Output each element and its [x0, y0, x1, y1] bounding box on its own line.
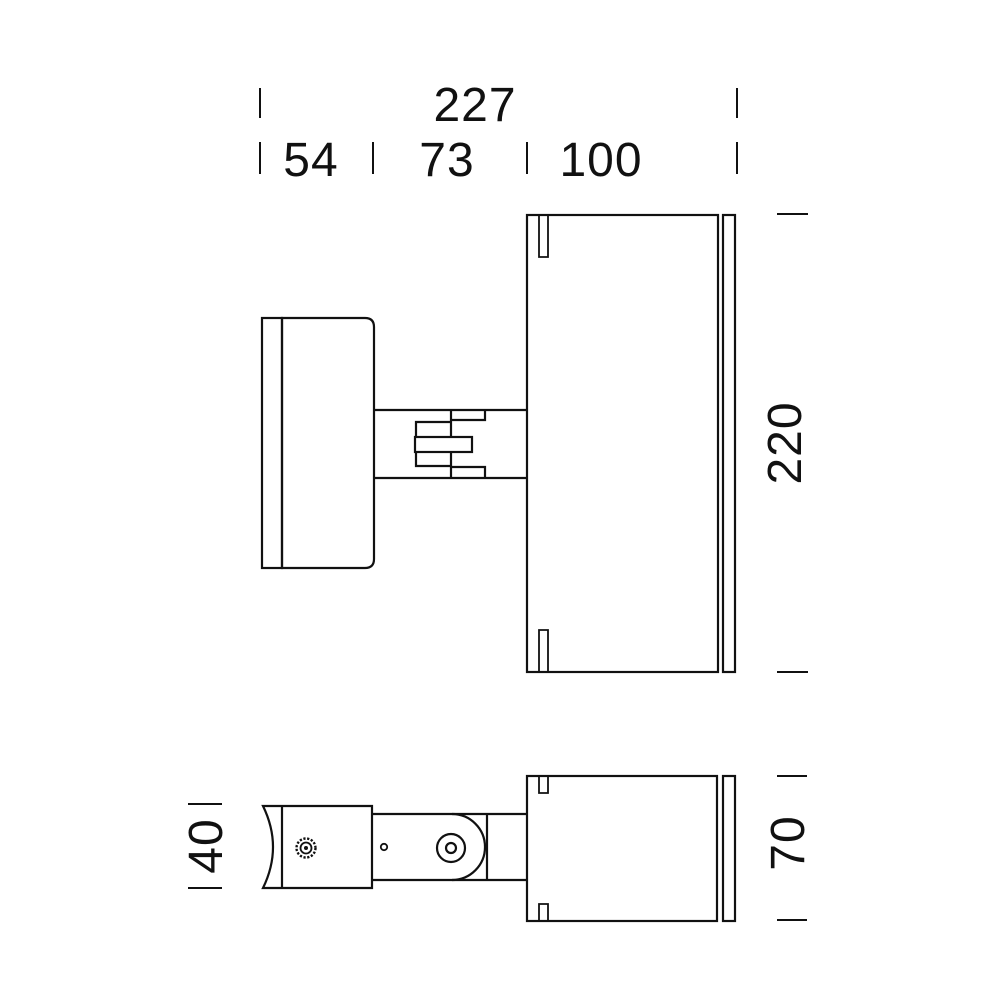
head-slot-bottom	[539, 630, 548, 672]
arm-pin	[381, 844, 387, 850]
hinge-pivot-inner	[446, 843, 456, 853]
head-front-ring	[723, 776, 735, 921]
wall-bracket-side	[262, 318, 374, 568]
drawing-canvas: 227 54 73 100	[0, 0, 1000, 1000]
dim-label-head-depth: 70	[762, 815, 815, 870]
wall-clamp-bottom	[263, 806, 372, 888]
head-bottom	[527, 776, 735, 921]
head-body	[527, 776, 717, 921]
bracket-backplate	[262, 318, 282, 568]
arm-side	[374, 410, 527, 478]
technical-drawing: 227 54 73 100	[0, 0, 1000, 1000]
dim-label-head-width: 100	[559, 134, 642, 187]
bracket-body	[282, 318, 374, 568]
head-notch-bottom	[539, 904, 548, 921]
dim-overall-height: 220	[759, 214, 812, 672]
dim-head-depth: 70	[762, 776, 815, 920]
dim-overall-width: 227	[260, 79, 737, 132]
arm-joint	[415, 410, 485, 478]
head-body	[527, 215, 718, 672]
clamp-outline	[263, 806, 372, 888]
dim-label-bracket-width: 54	[283, 134, 338, 187]
dim-segment-row: 54 73 100	[260, 134, 737, 187]
arm-bottom	[372, 814, 527, 880]
joint-top-notch	[451, 410, 485, 420]
head-slot-top	[539, 215, 548, 257]
bottom-view: 40	[180, 776, 815, 921]
joint-bottom-notch	[451, 467, 485, 478]
dim-label-arm-width: 73	[419, 134, 474, 187]
hinge-pivot-outer	[437, 834, 465, 862]
dim-label-bracket-height: 40	[180, 818, 233, 873]
side-view: 227 54 73 100	[260, 79, 812, 672]
head-front-ring	[723, 215, 735, 672]
clamp-screw-center	[304, 846, 308, 850]
dim-bracket-height: 40	[180, 804, 233, 888]
dim-label-overall-height: 220	[759, 401, 812, 484]
head-notch-top	[539, 776, 548, 793]
dim-label-overall-width: 227	[433, 79, 516, 132]
head-side	[527, 215, 735, 672]
joint-slider-bar	[415, 437, 472, 452]
